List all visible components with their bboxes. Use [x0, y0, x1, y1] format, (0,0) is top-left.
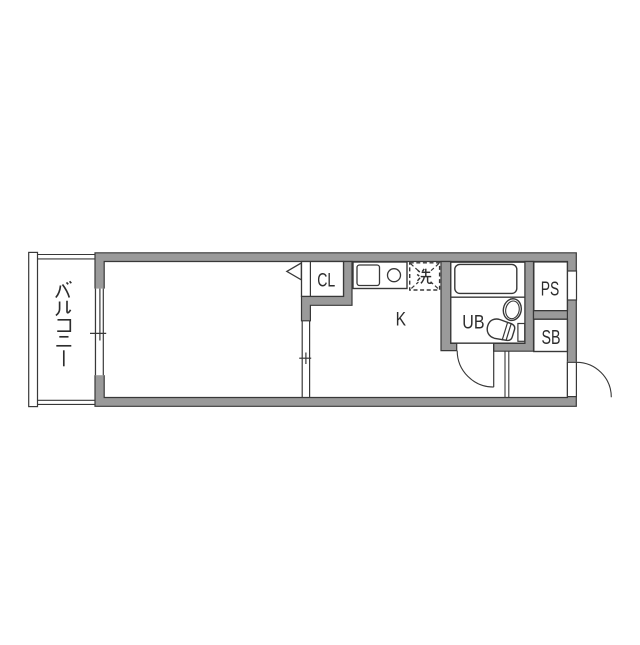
svg-text:K: K [396, 310, 407, 331]
svg-text:SB: SB [542, 327, 561, 349]
svg-text:PS: PS [541, 278, 560, 300]
svg-text:UB: UB [462, 311, 484, 333]
svg-text:CL: CL [317, 269, 335, 291]
